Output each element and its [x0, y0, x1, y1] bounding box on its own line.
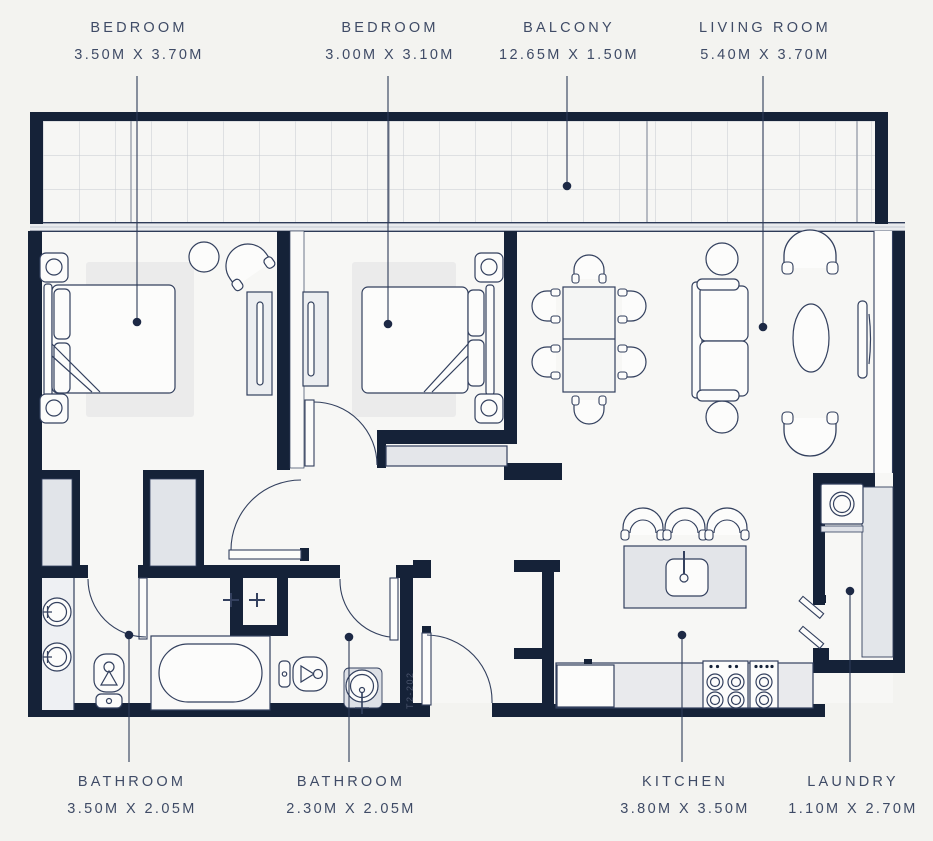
room-dimensions: 5.40M X 3.70M [699, 47, 831, 63]
wardrobe-handle [257, 302, 263, 385]
room-dimensions: 1.10M X 2.70M [788, 801, 918, 817]
tv-icon [858, 301, 867, 378]
room-name: KITCHEN [620, 774, 750, 790]
lamp-icon [481, 400, 497, 416]
room-dimensions: 3.00M X 3.10M [325, 47, 455, 63]
room-name: BEDROOM [74, 20, 204, 36]
room-name: BATHROOM [286, 774, 416, 790]
room-label-kitchen: KITCHEN 3.80M X 3.50M [620, 774, 750, 817]
closet [150, 479, 196, 566]
handle [584, 659, 592, 664]
toilet-icon [94, 654, 124, 708]
side-table-icon [189, 242, 219, 272]
headboard [486, 285, 494, 395]
cooktop-icon [750, 661, 778, 708]
pillow [468, 340, 484, 386]
room-dimensions: 3.80M X 3.50M [620, 801, 750, 817]
room-dimensions: 3.50M X 2.05M [67, 801, 197, 817]
room-label-bedroom-1: BEDROOM 3.50M X 3.70M [74, 20, 204, 63]
floor-plan-page: T2-202 BEDROOM 3.50M X 3.70M BEDROOM 3.0… [0, 0, 933, 841]
room-label-bedroom-2: BEDROOM 3.00M X 3.10M [325, 20, 455, 63]
sink-icon [344, 668, 382, 714]
dresser-icon [386, 446, 507, 466]
pillow [54, 343, 70, 393]
bathtub-icon [151, 636, 270, 710]
sliding-door-band [30, 222, 905, 232]
washer-base [821, 526, 863, 532]
toilet-icon [279, 657, 327, 691]
room-label-bathroom-2: BATHROOM 2.30M X 2.05M [286, 774, 416, 817]
room-name: BATHROOM [67, 774, 197, 790]
room-dimensions: 3.50M X 3.70M [74, 47, 204, 63]
bed-icon [362, 287, 468, 393]
side-table-icon [706, 243, 738, 275]
room-label-balcony: BALCONY 12.65M X 1.50M [499, 20, 639, 63]
wardrobe-handle [308, 302, 314, 376]
coffee-table-icon [793, 304, 829, 372]
room-name: LIVING ROOM [699, 20, 831, 36]
floor-plan-drawing: T2-202 [0, 0, 933, 841]
closet-column [290, 231, 304, 468]
sofa-icon [692, 279, 748, 401]
lamp-icon [46, 259, 62, 275]
lamp-icon [481, 259, 497, 275]
room-name: LAUNDRY [788, 774, 918, 790]
pillow [468, 290, 484, 336]
balcony-floor [43, 121, 876, 222]
pillow [54, 289, 70, 339]
room-label-laundry: LAUNDRY 1.10M X 2.70M [788, 774, 918, 817]
stove-icon [703, 661, 748, 708]
fridge-icon [557, 665, 614, 707]
wardrobe-icon [303, 292, 328, 386]
room-name: BALCONY [499, 20, 639, 36]
laundry-counter [862, 487, 893, 657]
room-dimensions: 12.65M X 1.50M [499, 47, 639, 63]
lamp-icon [46, 400, 62, 416]
room-name: BEDROOM [325, 20, 455, 36]
side-table-icon [706, 401, 738, 433]
closet [42, 479, 72, 566]
room-dimensions: 2.30M X 2.05M [286, 801, 416, 817]
room-label-living-room: LIVING ROOM 5.40M X 3.70M [699, 20, 831, 63]
window-strip [874, 231, 893, 473]
headboard [44, 284, 52, 396]
unit-number-label: T2-202 [405, 671, 415, 709]
room-label-bathroom-1: BATHROOM 3.50M X 2.05M [67, 774, 197, 817]
